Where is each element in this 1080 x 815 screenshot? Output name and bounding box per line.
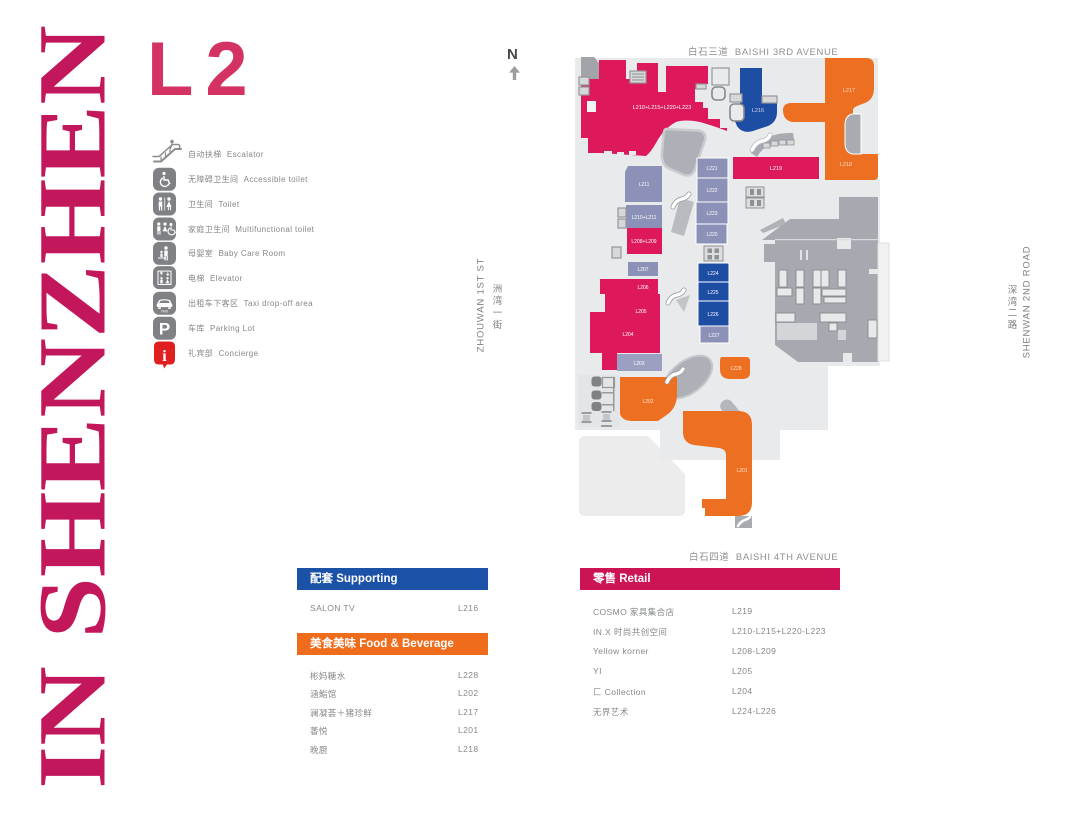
svg-text:L208+L209: L208+L209	[631, 239, 656, 245]
svg-text:L211: L211	[639, 182, 650, 188]
svg-text:L216: L216	[752, 108, 764, 114]
svg-text:L221: L221	[706, 166, 717, 172]
svg-text:L222: L222	[706, 188, 717, 194]
svg-text:L203: L203	[633, 361, 644, 367]
svg-text:L201: L201	[736, 468, 747, 474]
svg-text:L204: L204	[622, 332, 633, 338]
svg-text:L217: L217	[843, 88, 855, 94]
svg-text:i: i	[162, 348, 167, 365]
svg-text:L207: L207	[637, 267, 648, 273]
svg-text:L210+L211: L210+L211	[632, 215, 657, 221]
svg-text:L225: L225	[707, 290, 718, 296]
svg-text:L219: L219	[770, 166, 782, 172]
svg-text:L205: L205	[635, 309, 646, 315]
svg-text:L223: L223	[706, 211, 717, 217]
svg-text:L227: L227	[708, 333, 719, 339]
svg-text:L202: L202	[642, 399, 653, 405]
svg-text:TAXI: TAXI	[161, 310, 168, 314]
svg-text:L228: L228	[730, 366, 741, 372]
svg-text:L224: L224	[707, 271, 718, 277]
svg-text:P: P	[159, 320, 170, 339]
svg-text:L218: L218	[840, 162, 852, 168]
svg-text:L206: L206	[637, 285, 648, 291]
svg-text:L210+L215+L220+L223: L210+L215+L220+L223	[633, 105, 692, 111]
svg-text:L220: L220	[706, 232, 717, 238]
svg-text:L226: L226	[707, 312, 718, 318]
